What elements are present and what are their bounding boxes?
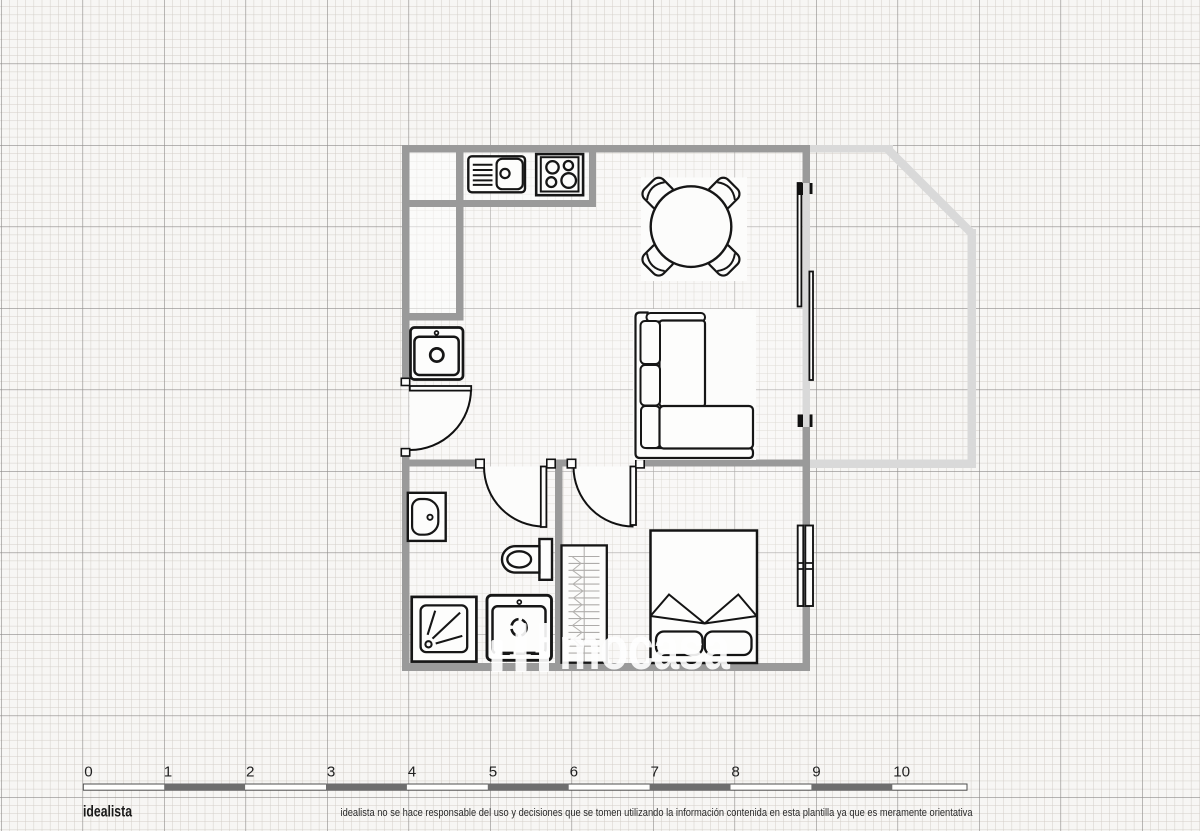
svg-text:1: 1	[164, 764, 172, 781]
svg-text:9: 9	[812, 764, 820, 781]
svg-text:2: 2	[246, 764, 254, 781]
svg-text:idealista: idealista	[83, 804, 132, 821]
svg-text:3: 3	[327, 764, 335, 781]
svg-text:mocasa: mocasa	[559, 615, 730, 682]
svg-text:idealista no se hace responsab: idealista no se hace responsable del uso…	[341, 807, 973, 819]
svg-text:7: 7	[651, 764, 659, 781]
svg-text:5: 5	[489, 764, 497, 781]
svg-text:0: 0	[84, 764, 92, 781]
svg-text:6: 6	[570, 764, 578, 781]
svg-text:4: 4	[408, 764, 416, 781]
svg-text:10: 10	[893, 764, 910, 781]
svg-text:8: 8	[731, 764, 739, 781]
